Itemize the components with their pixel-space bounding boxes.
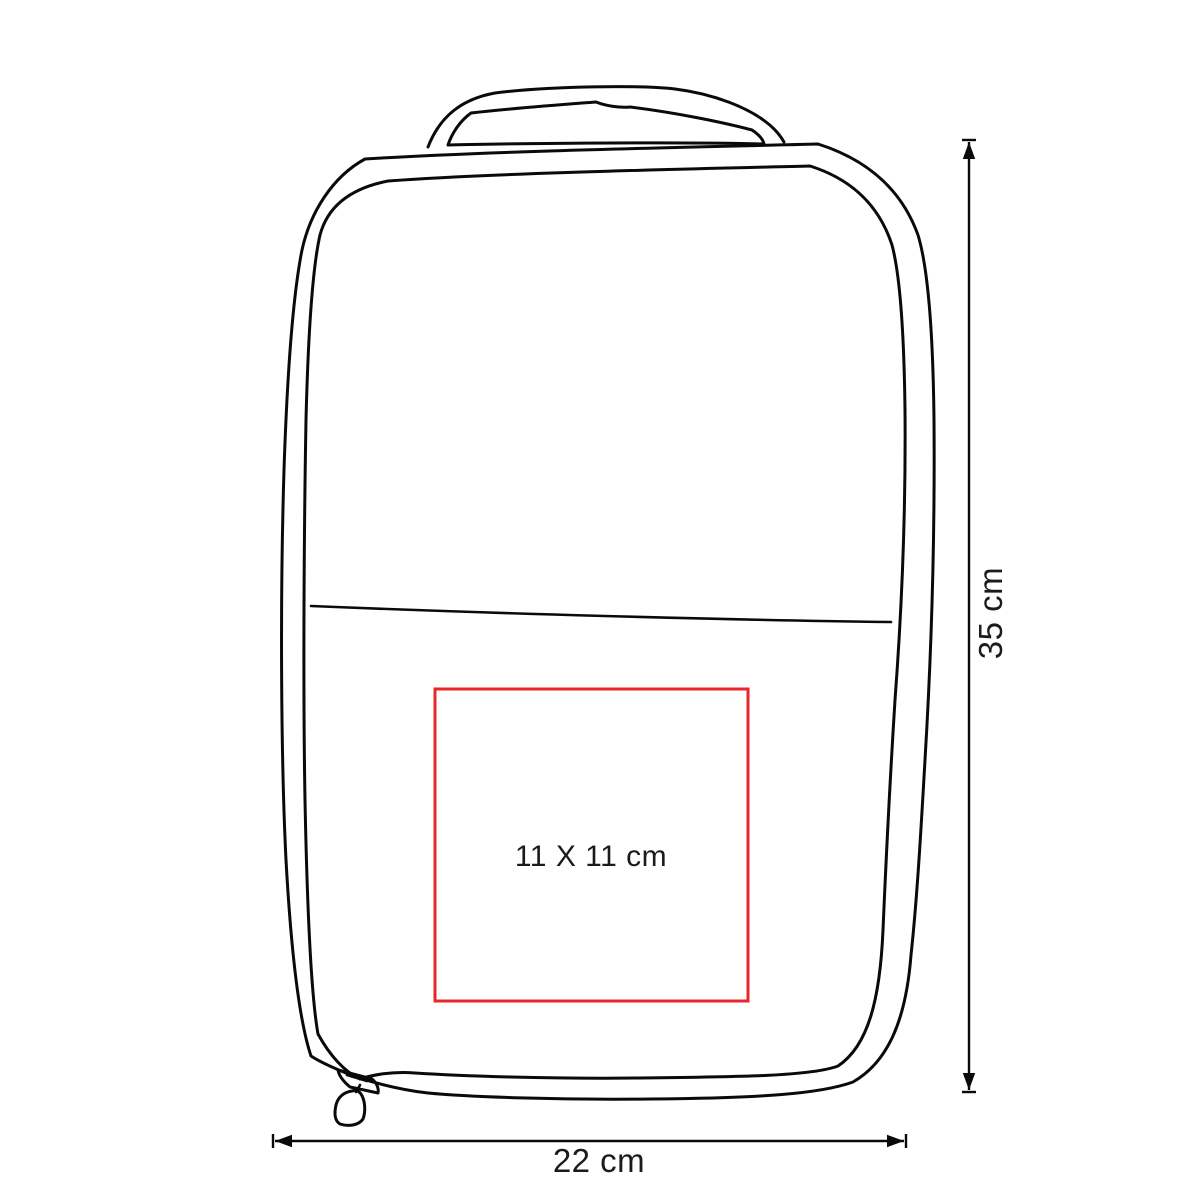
- pocket-seam-line: [311, 606, 891, 622]
- width-dimension: 22 cm: [273, 1134, 906, 1179]
- height-dimension-arrow-top: [963, 142, 975, 159]
- width-dimension-arrow-left: [275, 1135, 292, 1147]
- bag-inner-panel-line: [304, 166, 905, 1079]
- width-dimension-label: 22 cm: [553, 1142, 645, 1179]
- print-area: 11 X 11 cm: [435, 689, 748, 1001]
- handle-opening-line: [448, 102, 764, 145]
- diagram-canvas: 11 X 11 cm 35 cm 22 cm: [0, 0, 1200, 1200]
- height-dimension-label: 35 cm: [972, 567, 1009, 659]
- handle-outer-line: [428, 87, 784, 147]
- bag-drawing: [282, 87, 935, 1126]
- zipper-pull: [335, 1090, 365, 1125]
- width-dimension-arrow-right: [887, 1135, 904, 1147]
- height-dimension-arrow-bottom: [963, 1073, 975, 1090]
- height-dimension: 35 cm: [962, 140, 1009, 1092]
- product-dimension-diagram: 11 X 11 cm 35 cm 22 cm: [0, 0, 1200, 1200]
- print-area-label: 11 X 11 cm: [515, 840, 667, 873]
